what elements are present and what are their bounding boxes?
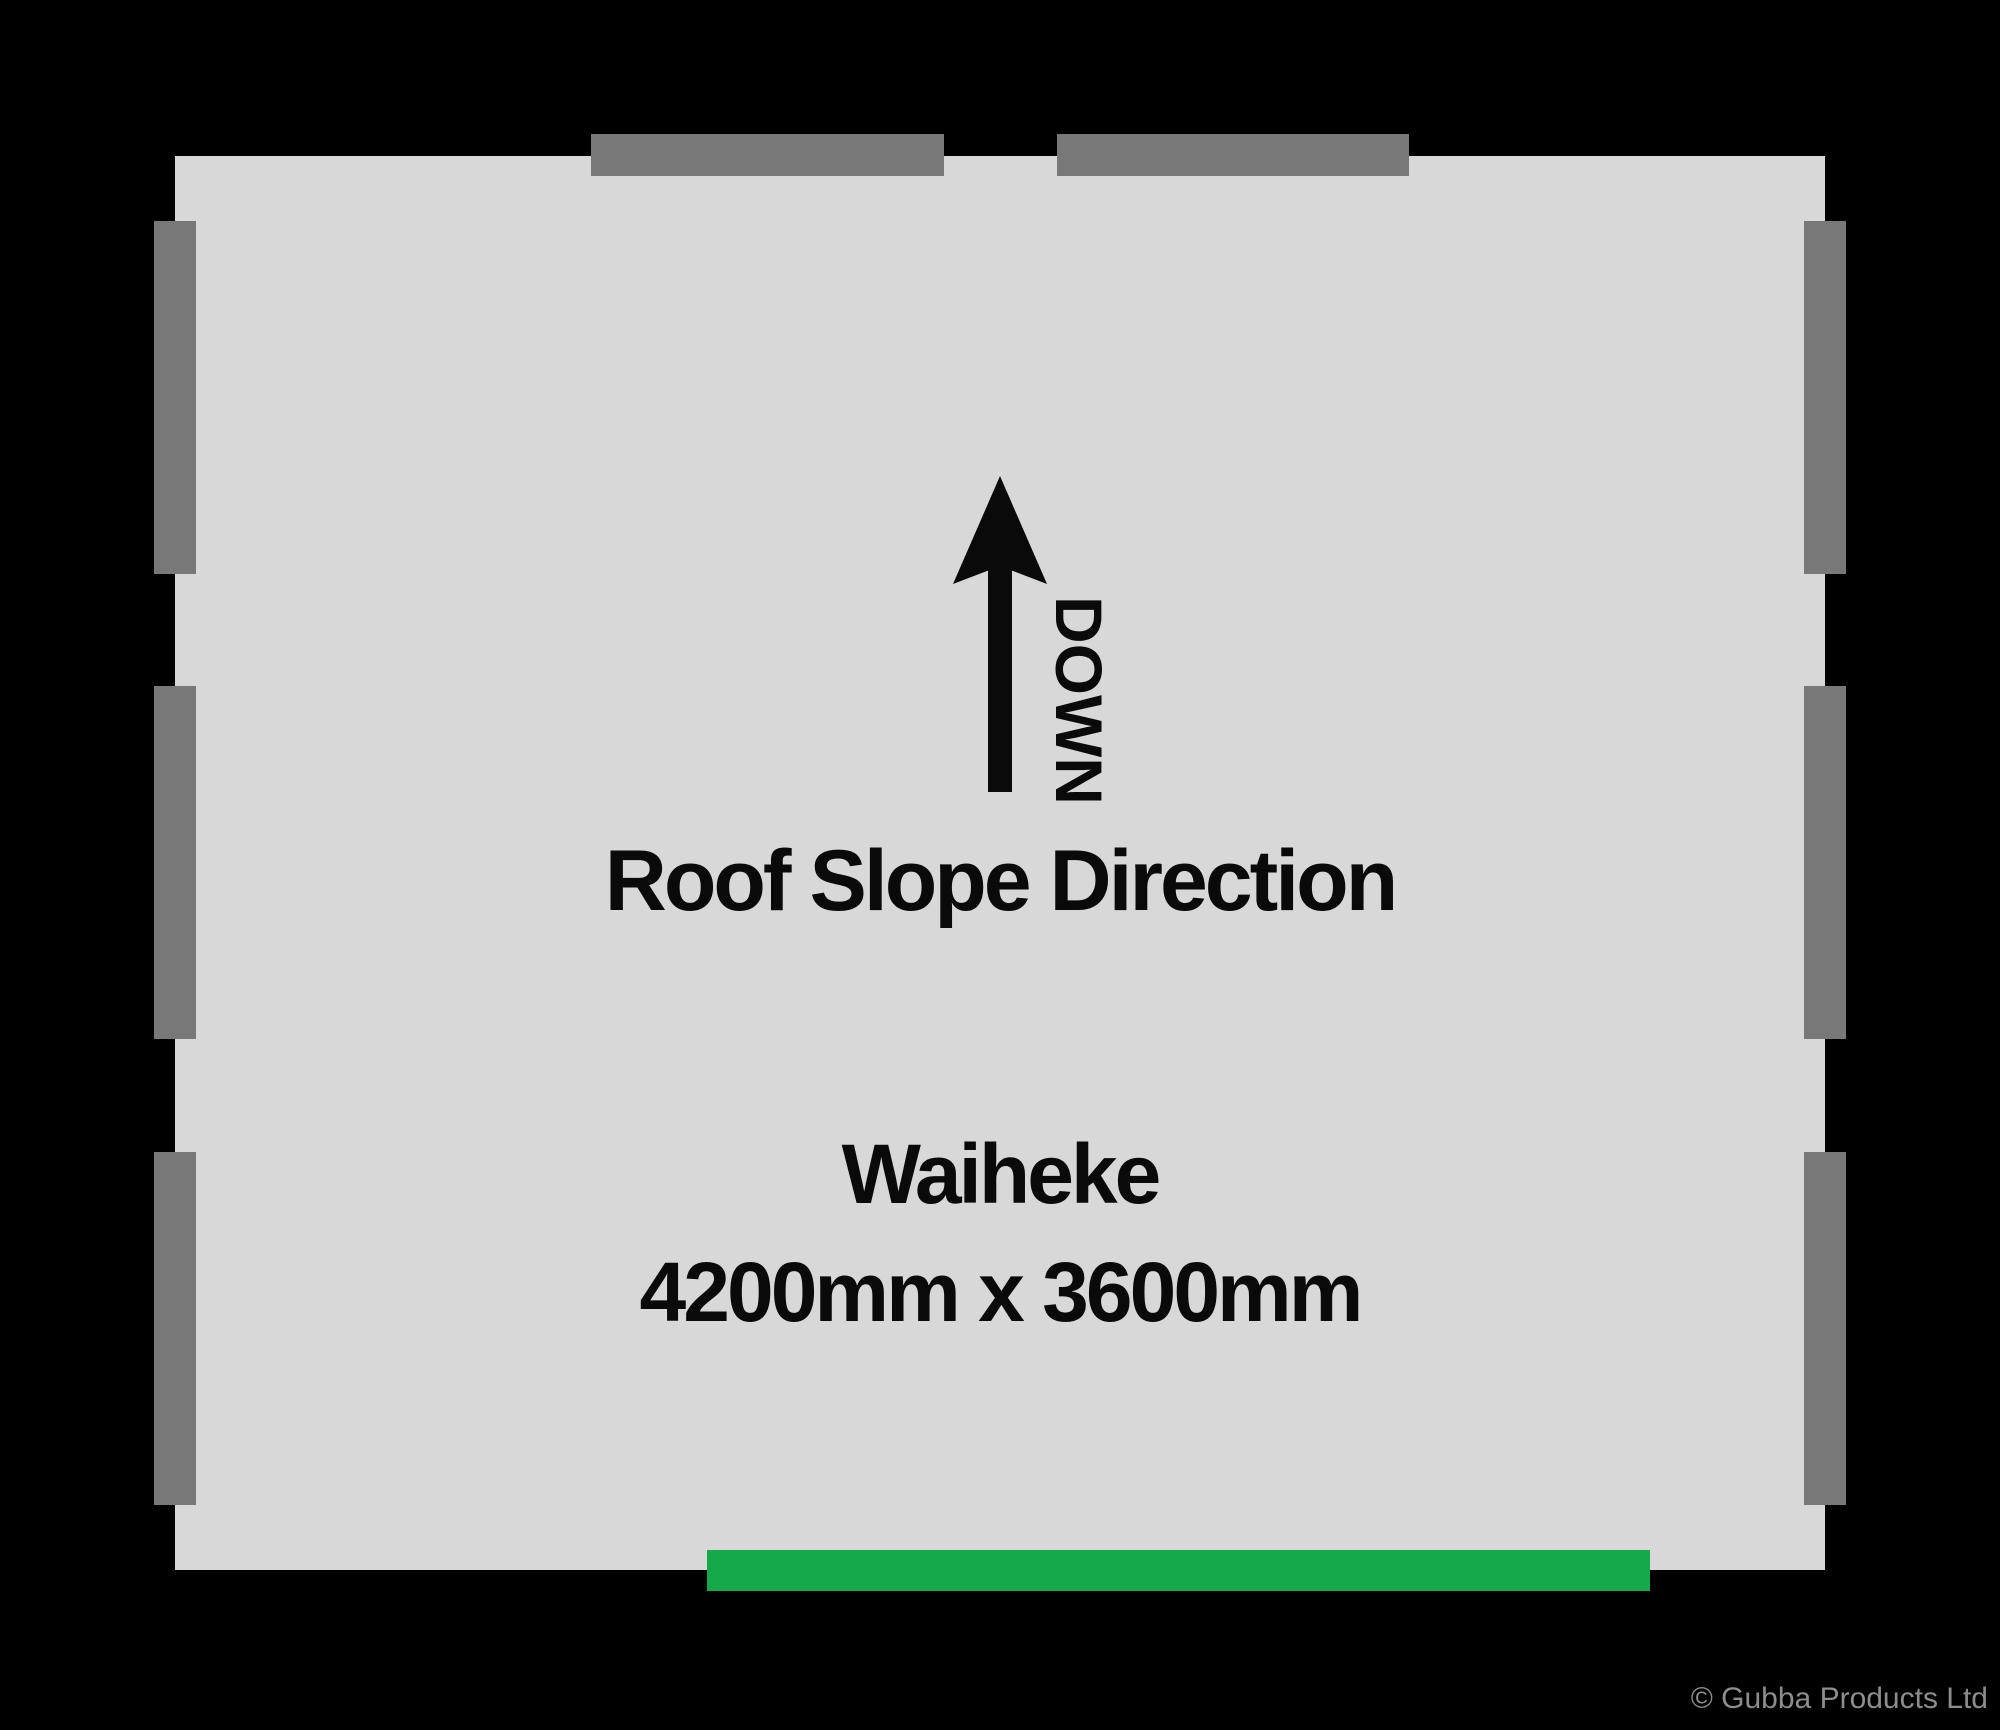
- copyright-text: © Gubba Products Ltd: [1691, 1684, 1988, 1714]
- window-marker-top: [1057, 134, 1409, 176]
- model-dimensions-label: 4200mm x 3600mm: [175, 1250, 1825, 1334]
- model-name-label: Waiheke: [175, 1132, 1825, 1216]
- floor-plan-canvas: DOWN Roof Slope Direction Waiheke 4200mm…: [0, 0, 2000, 1730]
- up-arrow-icon: [950, 476, 1050, 794]
- roof-slope-direction-label: Roof Slope Direction: [175, 838, 1825, 924]
- window-marker-right: [1804, 221, 1846, 574]
- down-label: DOWN: [1046, 596, 1112, 805]
- window-marker-left: [154, 221, 196, 574]
- window-marker-top: [591, 134, 944, 176]
- door-marker-bottom: [707, 1550, 1650, 1591]
